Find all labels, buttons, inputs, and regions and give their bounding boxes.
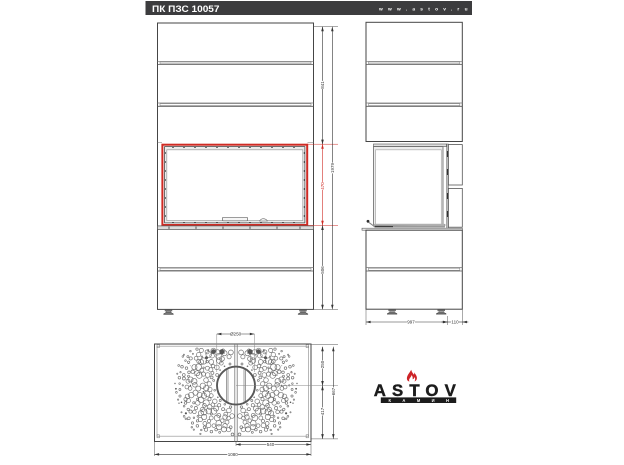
svg-text:ПК ПЗС 10057: ПК ПЗС 10057 bbox=[152, 4, 220, 15]
svg-text:1080: 1080 bbox=[228, 452, 239, 457]
svg-text:1979: 1979 bbox=[330, 162, 335, 173]
svg-text:417: 417 bbox=[320, 407, 325, 415]
svg-text:250: 250 bbox=[320, 360, 325, 368]
svg-text:506: 506 bbox=[320, 266, 325, 274]
svg-text:470: 470 bbox=[320, 182, 325, 190]
svg-text:841: 841 bbox=[320, 81, 325, 89]
svg-text:Ø250: Ø250 bbox=[230, 332, 242, 337]
svg-text:540: 540 bbox=[267, 442, 275, 447]
svg-text:997: 997 bbox=[407, 320, 415, 325]
svg-text:667: 667 bbox=[331, 387, 336, 395]
svg-text:110: 110 bbox=[451, 320, 459, 325]
